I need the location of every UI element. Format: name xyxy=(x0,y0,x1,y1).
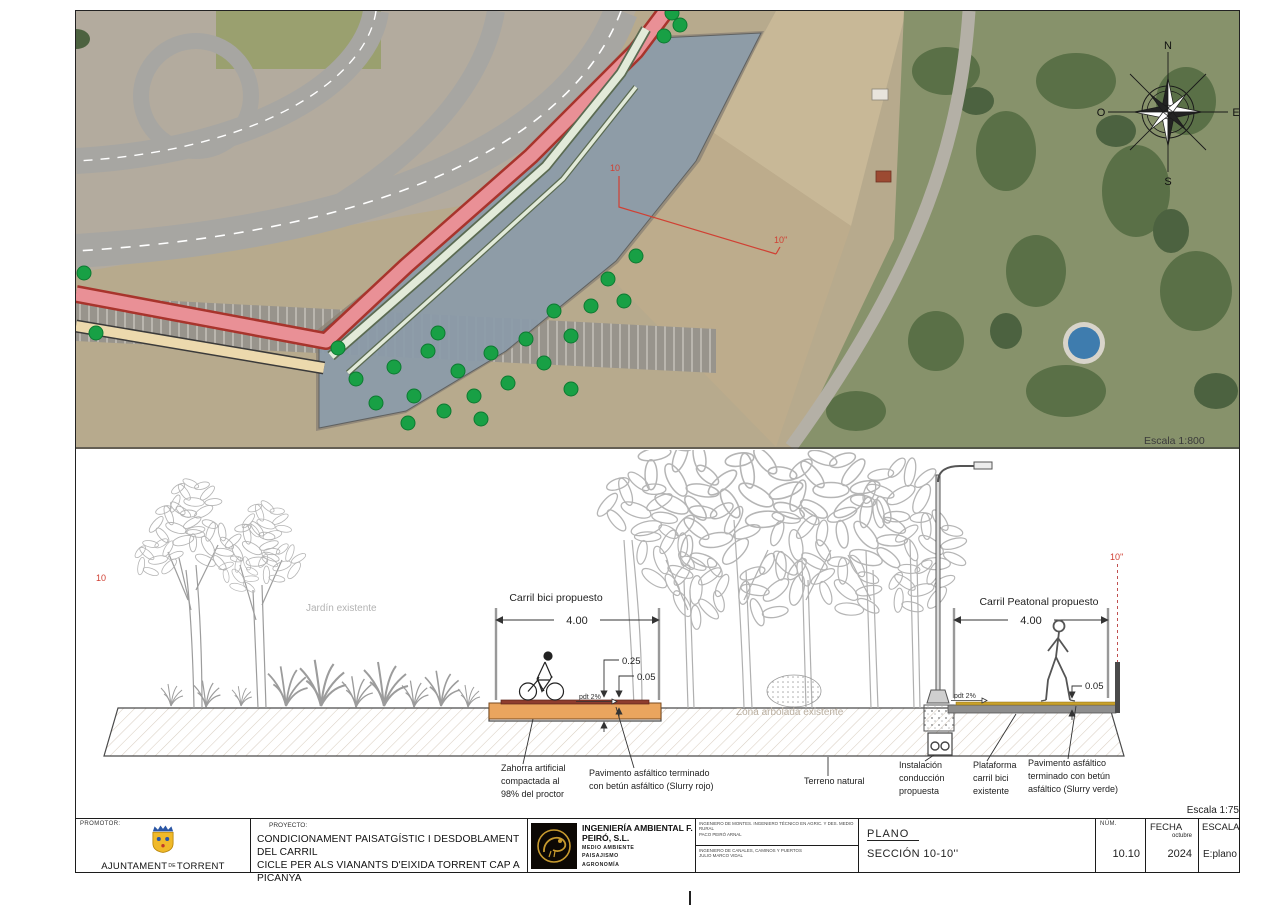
existing-bush xyxy=(767,675,821,707)
bike-lane-buildup xyxy=(489,700,661,719)
ped-width-dim: 4.00 xyxy=(1020,615,1041,627)
section-scale-label: Escala 1:75 xyxy=(1187,805,1239,816)
note-terreno: Terreno natural xyxy=(804,776,865,786)
map-scale-label: Escala 1:800 xyxy=(1144,435,1205,447)
garden-canopies xyxy=(123,469,313,601)
note-zahorra-2: compactada al xyxy=(501,776,560,786)
bike-surface-dim: 0.05 xyxy=(637,672,656,683)
company-logo-icon xyxy=(531,823,577,869)
date-month: octubre xyxy=(1172,833,1192,839)
project-cell: PROYECTO: CONDICIONAMENT PAISATGÍSTIC I … xyxy=(251,819,528,872)
note-instalacion-1: Instalación xyxy=(899,760,942,770)
garden-shrubs xyxy=(161,660,480,707)
compass-west-label: O xyxy=(1097,107,1106,119)
promoter-name: AJUNTAMENTDETORRENT xyxy=(76,861,250,872)
ped-slope-label: pdt 2% xyxy=(954,693,976,700)
note-instalacion-3: propuesta xyxy=(899,786,939,796)
note-slurry-verde-2: terminado con betún xyxy=(1028,771,1110,781)
section-marker-end: 10'' xyxy=(774,235,788,245)
boundary-wall xyxy=(1115,662,1120,713)
building xyxy=(872,89,888,100)
date-cell: FECHA octubre 2024 xyxy=(1146,819,1199,872)
engineer-row-1: INGENIERO DE MONTES. INGENIERO TÉCNICO E… xyxy=(696,819,858,846)
note-zahorra-3: 98% del proctor xyxy=(501,789,564,799)
cyclist-figure xyxy=(520,652,564,700)
compass-north-label: N xyxy=(1164,40,1172,52)
cross-section: Jardín existente 10 xyxy=(76,450,1239,818)
plan-sheet: 10 10'' N S E O xyxy=(0,0,1280,905)
note-plataforma-3: existente xyxy=(973,786,1009,796)
pool xyxy=(1068,327,1100,359)
bike-depth-dim: 0.25 xyxy=(622,656,641,667)
compass-south-label: S xyxy=(1164,176,1171,188)
company-cell: INGENIERÍA AMBIENTAL F. PEIRÓ, S.L. MEDI… xyxy=(528,819,696,872)
bike-slope-label: pdt 2% xyxy=(579,694,601,701)
aerial-map: 10 10'' N S E O xyxy=(76,11,1239,449)
registration-mark xyxy=(689,891,691,905)
conduit-box xyxy=(928,733,952,755)
promoter-cell: PROMOTOR: AJUNTAMENTDETORRENT xyxy=(76,819,251,872)
scale-label: ESCALA xyxy=(1202,822,1240,833)
project-label: PROYECTO: xyxy=(269,822,307,829)
section-marker-left: 10 xyxy=(96,573,106,583)
scale-value: E:plano xyxy=(1203,849,1237,860)
date-label: FECHA xyxy=(1150,822,1182,833)
scale-cell: ESCALA E:plano xyxy=(1199,819,1239,872)
building-red-roof xyxy=(876,171,891,182)
company-discipline-3: AGRONOMÍA xyxy=(582,862,695,869)
note-slurry-verde-1: Pavimento asfáltico xyxy=(1028,758,1106,768)
sheet-number-value: 10.10 xyxy=(1112,848,1140,860)
torrent-coat-of-arms-icon xyxy=(148,823,178,855)
plano-label: PLANO xyxy=(867,828,919,841)
sheet-number-cell: NÚM. 10.10 xyxy=(1096,819,1146,872)
garden-label: Jardín existente xyxy=(306,603,377,614)
section-marker-right: 10'' xyxy=(1110,552,1124,562)
company-name: INGENIERÍA AMBIENTAL F. PEIRÓ, S.L. xyxy=(582,823,695,843)
sheet-number-label: NÚM. xyxy=(1100,821,1117,827)
bike-lane-title: Carril bici propuesto xyxy=(509,592,603,604)
title-block: PROMOTOR: AJUNTAMENTDETORRENT PROYECTO: … xyxy=(75,818,1240,873)
project-title: CONDICIONAMENT PAISATGÍSTIC I DESDOBLAME… xyxy=(257,833,523,885)
engineers-cell: INGENIERO DE MONTES. INGENIERO TÉCNICO E… xyxy=(696,819,859,872)
existing-platform xyxy=(948,702,1116,713)
note-slurry-rojo-1: Pavimento asfáltico terminado xyxy=(589,768,710,778)
engineer-row-2: INGENIERO DE CANALES, CAMINOS Y PUERTOS … xyxy=(696,846,858,872)
note-slurry-rojo-2: con betún asfáltico (Slurry rojo) xyxy=(589,781,714,791)
woodland-canopies xyxy=(594,450,978,640)
compass-east-label: E xyxy=(1232,107,1239,119)
company-discipline-2: PAISAJISMO xyxy=(582,853,695,860)
note-plataforma-1: Plataforma xyxy=(973,760,1017,770)
section-marker-start: 10 xyxy=(610,163,620,173)
date-year: 2024 xyxy=(1168,848,1192,860)
plano-cell: PLANO SECCIÓN 10-10'' xyxy=(859,819,1096,872)
pedestrian-figure xyxy=(1041,621,1075,702)
plano-title: SECCIÓN 10-10'' xyxy=(867,848,1087,860)
woodland-label: Zona arbolada existente xyxy=(736,707,844,718)
ped-lane-title: Carril Peatonal propuesto xyxy=(979,596,1098,608)
note-plataforma-2: carril bici xyxy=(973,773,1009,783)
note-instalacion-2: conducción xyxy=(899,773,945,783)
bike-width-dim: 4.00 xyxy=(566,615,587,627)
ped-surface-dim: 0.05 xyxy=(1085,681,1104,692)
note-slurry-verde-3: asfáltico (Slurry verde) xyxy=(1028,784,1118,794)
note-zahorra-1: Zahorra artificial xyxy=(501,763,566,773)
company-discipline-1: MEDIO AMBIENTE xyxy=(582,845,695,852)
